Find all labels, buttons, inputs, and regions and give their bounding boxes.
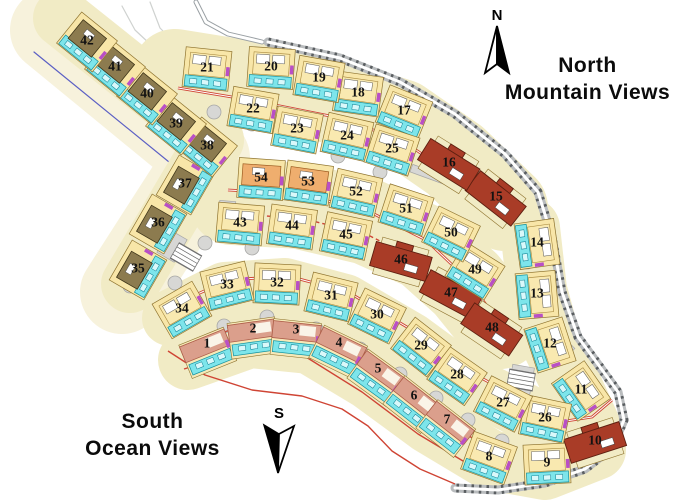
south-arrow-icon <box>261 422 297 476</box>
lot-number: 43 <box>233 215 247 230</box>
lot-number: 42 <box>80 33 94 48</box>
lot-number: 15 <box>489 189 503 204</box>
lot-number: 48 <box>485 320 499 335</box>
lot-number: 30 <box>370 307 384 322</box>
lot-number: 3 <box>293 322 300 337</box>
lot-number: 39 <box>169 116 183 131</box>
lot-number: 11 <box>575 382 588 397</box>
south-views-line1: South <box>55 408 250 435</box>
lot-number: 9 <box>544 455 551 470</box>
lot-number: 5 <box>375 361 382 376</box>
lot-number: 17 <box>397 103 411 118</box>
lot-number: 50 <box>444 225 458 240</box>
lot-number: 52 <box>349 184 363 199</box>
compass-south: S <box>261 406 297 476</box>
compass-south-letter: S <box>274 406 284 422</box>
lot-number: 1 <box>204 336 211 351</box>
lot-number: 46 <box>394 252 408 267</box>
lot-number: 21 <box>200 60 214 75</box>
lot-number: 24 <box>340 128 354 143</box>
lot-number: 41 <box>108 59 122 74</box>
site-plan: 1234567891011121314151617181920212223242… <box>0 0 700 500</box>
lot-number: 26 <box>538 410 552 425</box>
lot-number: 7 <box>444 412 451 427</box>
lot-number: 16 <box>442 155 456 170</box>
lot-number: 6 <box>411 388 418 403</box>
lot-number: 51 <box>399 201 413 216</box>
lot-number: 37 <box>178 176 192 191</box>
lot-number: 12 <box>543 336 557 351</box>
lot-number: 33 <box>220 277 234 292</box>
north-views-line1: North <box>465 52 700 79</box>
lot-number: 10 <box>588 433 602 448</box>
lot-number: 23 <box>290 121 304 136</box>
lot-number: 20 <box>264 59 278 74</box>
lot-number: 28 <box>450 367 464 382</box>
lot-number: 47 <box>444 285 458 300</box>
lot-number: 13 <box>530 286 544 301</box>
lot-number: 19 <box>312 70 326 85</box>
lot-number: 35 <box>131 261 145 276</box>
north-views-line2: Mountain Views <box>465 79 700 106</box>
lot-number: 44 <box>285 218 299 233</box>
lot-number: 31 <box>324 288 338 303</box>
lot-number: 32 <box>270 275 284 290</box>
lot-number: 38 <box>200 138 214 153</box>
lot-number: 2 <box>250 321 257 336</box>
south-views-label: South Ocean Views <box>55 408 250 462</box>
lot-number: 36 <box>151 215 165 230</box>
lot-number: 54 <box>254 170 268 185</box>
lot-number: 34 <box>175 301 189 316</box>
lot-number: 53 <box>301 174 315 189</box>
lot-number: 49 <box>468 262 482 277</box>
lot-number: 45 <box>339 227 353 242</box>
lot-number: 25 <box>385 141 399 156</box>
lot-number: 27 <box>496 395 510 410</box>
compass-north-letter: N <box>492 8 503 24</box>
lot-number: 8 <box>486 449 493 464</box>
lot-number: 22 <box>246 101 260 116</box>
lot-number: 4 <box>336 335 343 350</box>
lot-number: 29 <box>414 338 428 353</box>
lot-number: 40 <box>140 86 154 101</box>
lot-number: 14 <box>530 235 544 250</box>
south-views-line2: Ocean Views <box>55 435 250 462</box>
north-views-label: North Mountain Views <box>465 52 700 106</box>
lot-number: 18 <box>351 85 365 100</box>
